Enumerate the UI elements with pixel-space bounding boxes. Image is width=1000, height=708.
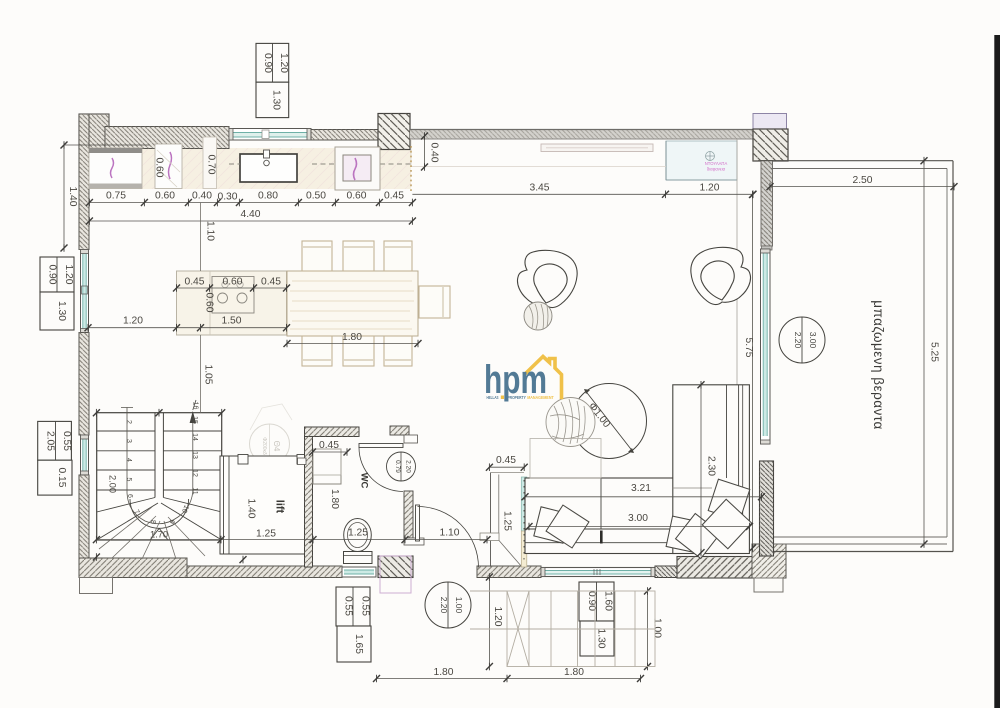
svg-text:5: 5 [125, 478, 132, 482]
svg-text:HELLAS: HELLAS [487, 395, 499, 400]
svg-text:1.70: 1.70 [150, 530, 168, 540]
svg-text:3: 3 [125, 439, 132, 443]
svg-text:1.10: 1.10 [205, 221, 216, 241]
svg-text:0.40: 0.40 [429, 142, 440, 162]
svg-text:2.30: 2.30 [706, 456, 717, 476]
svg-text:1.40: 1.40 [246, 498, 257, 518]
svg-text:2.20: 2.20 [793, 332, 803, 349]
svg-text:6: 6 [126, 494, 133, 498]
svg-text:1.65: 1.65 [353, 634, 364, 654]
svg-text:0.40: 0.40 [192, 191, 212, 202]
svg-text:1.80: 1.80 [564, 667, 584, 678]
svg-text:4: 4 [125, 458, 132, 462]
svg-text:1.80: 1.80 [433, 667, 453, 678]
svg-text:1.30: 1.30 [56, 301, 67, 321]
svg-text:14: 14 [191, 433, 198, 441]
svg-text:2.00: 2.00 [108, 475, 118, 493]
svg-text:1.25: 1.25 [502, 511, 513, 531]
svg-text:0.79: 0.79 [394, 460, 401, 473]
svg-text:Θ4: Θ4 [272, 441, 281, 452]
svg-text:0.75: 0.75 [106, 191, 126, 202]
svg-text:1.25: 1.25 [348, 528, 368, 539]
svg-text:0.45: 0.45 [384, 191, 404, 202]
svg-text:5.75: 5.75 [743, 337, 754, 357]
svg-text:1.10: 1.10 [439, 528, 459, 539]
svg-text:0.70: 0.70 [206, 154, 217, 174]
svg-text:1.80: 1.80 [329, 489, 340, 509]
svg-text:3.00: 3.00 [808, 332, 818, 349]
svg-text:4.40: 4.40 [240, 209, 260, 220]
svg-text:0.45: 0.45 [261, 277, 281, 288]
svg-text:2.20: 2.20 [405, 460, 412, 473]
svg-text:1.25: 1.25 [256, 529, 276, 540]
svg-text:PROPERTY: PROPERTY [507, 395, 526, 400]
svg-text:0.55: 0.55 [343, 596, 354, 616]
svg-text:1.40: 1.40 [67, 186, 78, 206]
svg-text:1.30: 1.30 [271, 90, 282, 110]
svg-text:0.60: 0.60 [222, 277, 242, 288]
svg-text:Φ200κδ: Φ200κδ [261, 437, 267, 455]
svg-text:5.25: 5.25 [929, 342, 940, 362]
svg-text:0.60: 0.60 [346, 191, 366, 202]
svg-text:16: 16 [192, 402, 199, 410]
svg-text:διαφανεια: διαφανεια [707, 167, 726, 172]
svg-text:2.20: 2.20 [439, 597, 449, 614]
svg-text:1.05: 1.05 [203, 364, 214, 384]
svg-text:0.45: 0.45 [496, 455, 516, 466]
svg-text:0.55: 0.55 [360, 596, 371, 616]
svg-text:MANAGEMENT: MANAGEMENT [527, 395, 554, 400]
svg-text:15: 15 [191, 416, 198, 424]
svg-text:ΝΤΟΥΛΑΠΑ: ΝΤΟΥΛΑΠΑ [705, 161, 728, 166]
svg-text:μπαζωμενη βεραντα: μπαζωμενη βεραντα [871, 300, 886, 430]
svg-text:lift: lift [274, 500, 286, 514]
svg-text:0.80: 0.80 [258, 191, 278, 202]
svg-text:1.00: 1.00 [652, 618, 663, 638]
svg-text:3.45: 3.45 [529, 182, 549, 193]
svg-text:0.90: 0.90 [47, 264, 58, 284]
svg-text:3.21: 3.21 [631, 483, 651, 494]
svg-text:12: 12 [191, 469, 198, 477]
svg-text:1.20: 1.20 [123, 316, 143, 327]
svg-text:0.45: 0.45 [184, 277, 204, 288]
svg-text:WC: WC [359, 473, 370, 489]
svg-text:1.30: 1.30 [596, 628, 607, 648]
svg-text:1.20: 1.20 [278, 53, 289, 73]
svg-text:8: 8 [149, 520, 156, 524]
svg-text:2: 2 [125, 420, 132, 424]
svg-text:11: 11 [191, 487, 198, 494]
svg-text:1.80: 1.80 [342, 332, 362, 343]
svg-text:1.60: 1.60 [603, 591, 614, 611]
svg-text:0.60: 0.60 [154, 157, 165, 177]
svg-text:13: 13 [191, 451, 198, 459]
svg-text:0.90: 0.90 [262, 53, 273, 73]
svg-text:2.50: 2.50 [852, 175, 872, 186]
svg-text:0.15: 0.15 [56, 467, 67, 487]
svg-text:0.60: 0.60 [204, 292, 215, 312]
svg-text:0.55: 0.55 [61, 431, 72, 451]
svg-text:1.50: 1.50 [221, 316, 241, 327]
svg-text:0.45: 0.45 [319, 440, 339, 451]
svg-text:1.20: 1.20 [492, 606, 503, 626]
svg-text:3.00: 3.00 [628, 513, 648, 524]
svg-text:2.05: 2.05 [45, 431, 56, 451]
svg-text:0.50: 0.50 [306, 191, 326, 202]
svg-text:1.00: 1.00 [454, 597, 464, 614]
svg-text:0.60: 0.60 [155, 191, 175, 202]
svg-text:1.20: 1.20 [63, 264, 74, 284]
svg-text:1.20: 1.20 [699, 182, 719, 193]
svg-text:0.30: 0.30 [217, 192, 237, 203]
